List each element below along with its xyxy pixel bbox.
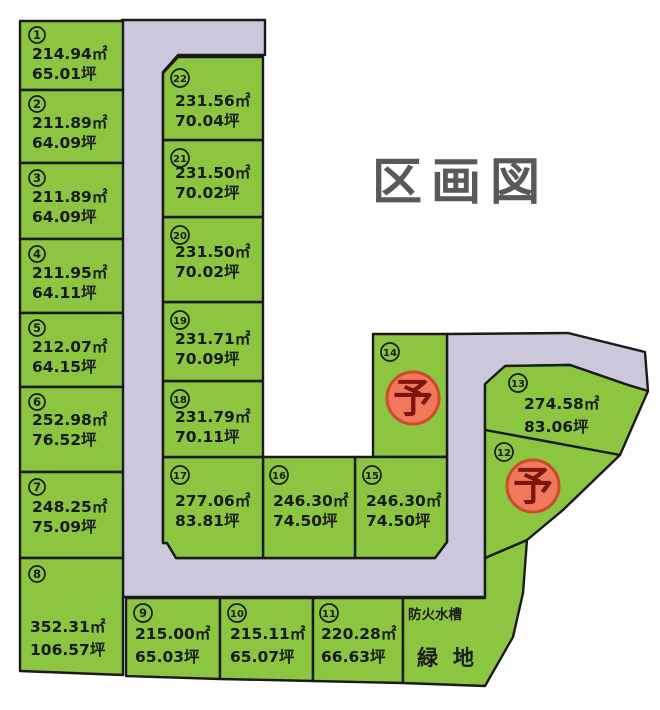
plot-3-area-tsubo: 64.09坪 [32,208,97,226]
plot-19-area-m2: 231.71㎡ [175,329,251,348]
plot-14-number: 14 [383,348,397,359]
plot-9-number: 9 [139,606,147,620]
plot-10-area-tsubo: 65.07坪 [230,648,295,666]
plot-22: 22 231.56㎡ 70.04坪 [163,57,263,140]
plot-11-area-m2: 220.28㎡ [321,624,397,643]
plot-5-area-m2: 212.07㎡ [32,337,108,356]
plot-16-area-m2: 246.30㎡ [273,491,349,510]
plot-20: 20 231.50㎡ 70.02坪 [163,217,263,302]
plot-1-area-tsubo: 65.01坪 [32,65,97,83]
plot-2-area-tsubo: 64.09坪 [32,134,97,152]
plot-6: 6 252.98㎡ 76.52坪 [20,387,123,472]
plot-7-number: 7 [33,480,41,494]
plot-15-area-tsubo: 74.50坪 [366,512,431,530]
plot-8-number: 8 [33,567,41,581]
plot-18-area-tsubo: 70.11坪 [175,428,240,446]
plot-12-reserved-label: 予 [513,464,553,510]
plot-19-number: 19 [173,316,187,327]
plot-5-number: 5 [33,321,41,335]
plot-10: 10 215.11㎡ 65.07坪 [220,598,313,681]
plot-17-area-tsubo: 83.81坪 [175,512,240,530]
plot-7: 7 248.25㎡ 75.09坪 [20,472,123,558]
plot-14-reserved-stamp: 予 [387,372,439,424]
plot-12-reserved-stamp: 予 [507,460,559,512]
plot-10-area-m2: 215.11㎡ [230,624,306,643]
plot-13-area-m2: 274.58㎡ [524,394,600,413]
plot-13-area-tsubo: 83.06坪 [524,418,589,436]
plot-16-area-tsubo: 74.50坪 [273,512,338,530]
plot-22-area-m2: 231.56㎡ [175,91,251,110]
green-space-label: 緑地 [417,646,489,670]
plot-3: 3 211.89㎡ 64.09坪 [20,163,123,239]
plot-18-number: 18 [173,395,187,406]
plot-21-area-tsubo: 70.02坪 [175,184,240,202]
plot-21: 21 231.50㎡ 70.02坪 [163,140,263,217]
plot-16-number: 16 [272,471,286,482]
plot-18-area-m2: 231.79㎡ [175,407,251,426]
plot-6-area-tsubo: 76.52坪 [32,431,97,449]
plot-9: 9 215.00㎡ 65.03坪 [126,598,220,679]
lot-map-canvas: 区画図 1 214.94㎡ 65.01坪 2 211.89㎡ 64.09坪 3 … [0,0,660,710]
plot-8-area-m2: 352.31㎡ [30,617,106,636]
page-title: 区画図 [372,153,549,211]
plot-3-number: 3 [33,171,41,185]
plot-17-number: 17 [173,471,187,482]
plot-2: 2 211.89㎡ 64.09坪 [20,90,123,163]
plot-13-number: 13 [511,379,525,390]
plot-11: 11 220.28㎡ 66.63坪 [313,598,403,683]
plot-10-number: 10 [230,609,244,620]
plot-22-number: 22 [173,74,187,85]
plot-4-area-tsubo: 64.11坪 [32,284,97,302]
plot-4-number: 4 [33,247,41,261]
plot-19: 19 231.71㎡ 70.09坪 [163,302,263,381]
plot-9-area-tsubo: 65.03坪 [135,648,200,666]
plot-2-number: 2 [33,97,41,111]
plot-9-area-m2: 215.00㎡ [135,624,211,643]
plot-5-area-tsubo: 64.15坪 [32,358,97,376]
plot-1: 1 214.94㎡ 65.01坪 [20,21,123,90]
plot-22-area-tsubo: 70.04坪 [175,112,240,130]
plot-15-number: 15 [365,471,379,482]
plot-11-number: 11 [322,609,336,620]
plot-17: 17 277.06㎡ 83.81坪 [163,457,263,558]
plot-2-area-m2: 211.89㎡ [32,113,108,132]
plot-19-area-tsubo: 70.09坪 [175,350,240,368]
plot-4: 4 211.95㎡ 64.11坪 [20,239,123,313]
plot-5: 5 212.07㎡ 64.15坪 [20,313,123,387]
plot-6-number: 6 [33,395,41,409]
plot-20-number: 20 [173,231,187,242]
plot-21-area-m2: 231.50㎡ [175,163,251,182]
plot-1-number: 1 [33,28,41,42]
plot-7-area-m2: 248.25㎡ [32,497,108,516]
plot-14: 14 予 [373,334,447,457]
plot-17-area-m2: 277.06㎡ [175,491,251,510]
plot-18: 18 231.79㎡ 70.11坪 [163,381,263,457]
plot-8-area-tsubo: 106.57坪 [30,641,106,659]
plot-12-number: 12 [497,448,511,459]
plot-15: 15 246.30㎡ 74.50坪 [355,457,447,558]
plot-8: 8 352.31㎡ 106.57坪 [20,558,123,675]
plot-15-area-m2: 246.30㎡ [366,491,442,510]
plot-16: 16 246.30㎡ 74.50坪 [263,457,355,558]
fire-water-tank-label: 防火水槽 [408,606,462,623]
plot-4-area-m2: 211.95㎡ [32,263,108,282]
plot-20-area-tsubo: 70.02坪 [175,263,240,281]
plot-3-area-m2: 211.89㎡ [32,187,108,206]
plot-6-area-m2: 252.98㎡ [32,410,108,429]
plot-11-area-tsubo: 66.63坪 [321,648,386,666]
plot-20-area-m2: 231.50㎡ [175,242,251,261]
plot-7-area-tsubo: 75.09坪 [32,518,97,536]
plot-1-area-m2: 214.94㎡ [32,44,108,63]
plot-14-reserved-label: 予 [393,376,433,422]
